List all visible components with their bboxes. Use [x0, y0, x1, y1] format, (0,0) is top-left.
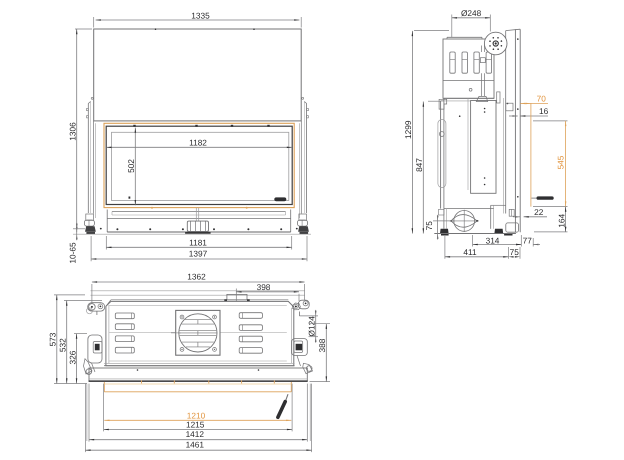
svg-text:10-65: 10-65 [67, 242, 77, 264]
svg-text:75: 75 [424, 221, 434, 231]
svg-text:1362: 1362 [187, 271, 206, 281]
svg-text:75: 75 [510, 247, 520, 257]
svg-text:326: 326 [67, 350, 77, 364]
svg-text:1215: 1215 [186, 420, 205, 430]
svg-text:1299: 1299 [403, 120, 413, 139]
svg-text:1461: 1461 [186, 440, 205, 450]
svg-text:Ø124: Ø124 [307, 316, 317, 337]
svg-text:502: 502 [126, 159, 136, 173]
svg-text:1412: 1412 [186, 429, 205, 439]
svg-text:573: 573 [48, 332, 58, 346]
svg-text:1306: 1306 [67, 122, 77, 141]
svg-text:22: 22 [534, 207, 544, 217]
svg-text:411: 411 [463, 247, 477, 257]
svg-text:1182: 1182 [189, 138, 207, 148]
svg-text:545: 545 [555, 155, 565, 169]
svg-text:164: 164 [556, 213, 566, 227]
svg-text:532: 532 [58, 338, 68, 352]
svg-text:1397: 1397 [189, 249, 208, 259]
svg-text:1181: 1181 [189, 237, 207, 247]
svg-text:16: 16 [539, 106, 549, 116]
svg-text:77: 77 [523, 235, 533, 245]
svg-text:Ø248: Ø248 [461, 8, 482, 18]
svg-text:70: 70 [537, 94, 547, 104]
svg-text:398: 398 [257, 282, 271, 292]
svg-text:388: 388 [317, 338, 327, 352]
svg-text:1335: 1335 [191, 11, 210, 21]
svg-text:314: 314 [486, 235, 500, 245]
svg-text:847: 847 [414, 158, 424, 172]
